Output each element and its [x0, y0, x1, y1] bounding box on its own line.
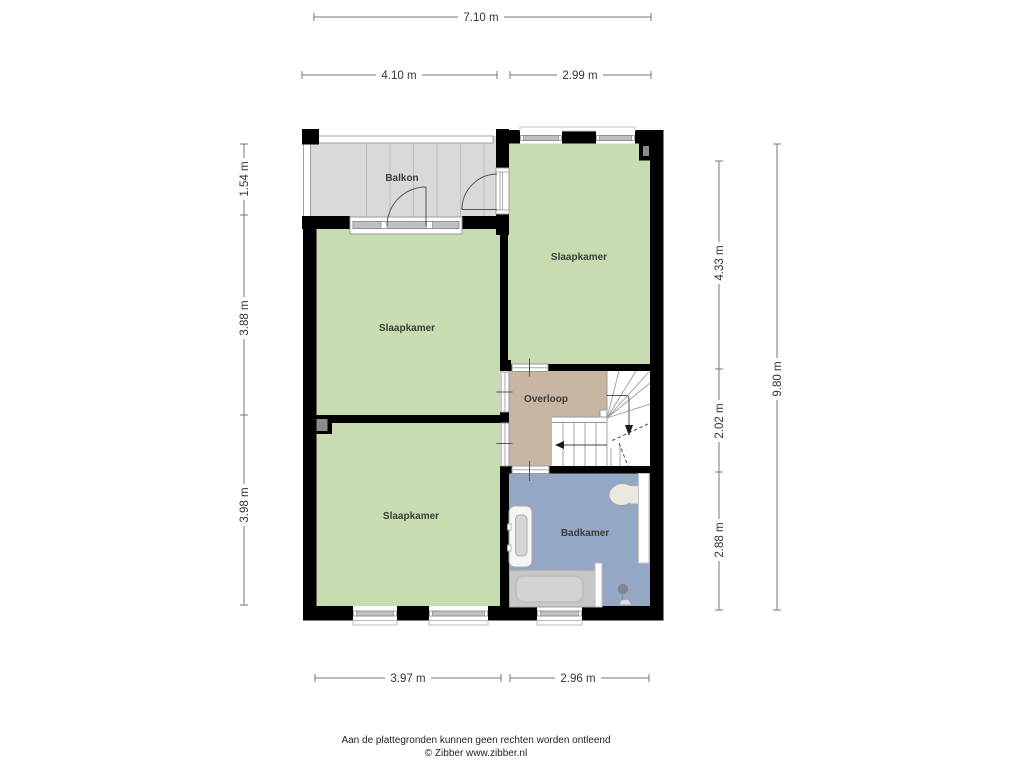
svg-text:4.33 m: 4.33 m	[714, 245, 726, 280]
svg-text:3.88 m: 3.88 m	[239, 300, 251, 335]
svg-text:3.97 m: 3.97 m	[390, 673, 425, 685]
svg-text:2.02 m: 2.02 m	[714, 403, 726, 438]
svg-text:Slaapkamer: Slaapkamer	[383, 511, 439, 522]
svg-text:9.80 m: 9.80 m	[772, 361, 784, 396]
svg-text:2.99 m: 2.99 m	[562, 70, 597, 82]
svg-text:3.98 m: 3.98 m	[239, 487, 251, 522]
svg-text:© Zibber www.zibber.nl: © Zibber www.zibber.nl	[425, 748, 527, 759]
svg-text:2.88 m: 2.88 m	[714, 522, 726, 557]
svg-text:Overloop: Overloop	[524, 394, 568, 405]
svg-text:4.10 m: 4.10 m	[381, 70, 416, 82]
svg-text:Slaapkamer: Slaapkamer	[379, 323, 435, 334]
svg-text:7.10 m: 7.10 m	[463, 12, 498, 24]
svg-text:2.96 m: 2.96 m	[560, 673, 595, 685]
svg-text:Balkon: Balkon	[385, 173, 418, 184]
svg-text:Aan de plattegronden kunnen ge: Aan de plattegronden kunnen geen rechten…	[341, 735, 610, 746]
svg-text:Badkamer: Badkamer	[561, 528, 609, 539]
svg-text:Slaapkamer: Slaapkamer	[551, 252, 607, 263]
svg-text:1.54 m: 1.54 m	[239, 161, 251, 196]
